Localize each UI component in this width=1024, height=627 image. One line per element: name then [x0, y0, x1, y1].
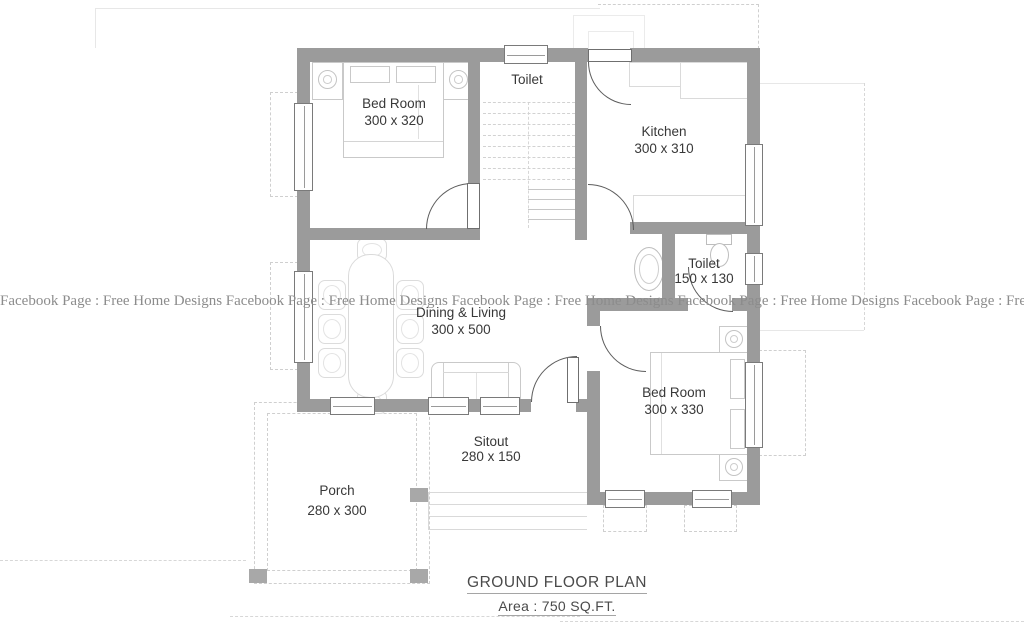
sitout-step	[428, 516, 587, 517]
stair-tread	[483, 102, 575, 103]
sitout-step	[428, 504, 587, 505]
wall	[730, 492, 760, 505]
stair-tread	[483, 135, 575, 136]
wall	[630, 222, 760, 234]
projection-line	[560, 621, 1024, 622]
room-size: 300 x 310	[599, 140, 729, 157]
step-projection	[684, 505, 737, 532]
plan-title: GROUND FLOOR PLAN	[467, 574, 647, 594]
sitout-step	[428, 529, 587, 530]
stair-tread	[483, 168, 575, 169]
door-swing	[600, 326, 646, 372]
floor-plan: Bed Room 300 x 320 Toilet Kitchen 300 x …	[0, 0, 1024, 627]
door-swing	[588, 62, 631, 105]
window-projection	[759, 350, 806, 456]
window	[504, 45, 548, 64]
wall	[643, 492, 692, 505]
stair-tread	[483, 179, 575, 180]
room-label-sitout: Sitout 280 x 150	[416, 434, 566, 464]
room-label-toilet-2: Toilet 150 x 130	[659, 256, 749, 286]
room-size: 280 x 300	[262, 501, 412, 521]
window	[605, 490, 645, 508]
wall	[297, 228, 480, 240]
watermark: Facebook Page : Free Home Designs Facebo…	[0, 293, 1024, 310]
door-swing	[588, 184, 634, 230]
kitchen-counter	[629, 62, 683, 87]
wall	[575, 48, 587, 240]
room-name: Toilet	[659, 256, 749, 271]
door-swing	[426, 183, 472, 229]
stair-tread	[483, 124, 575, 125]
step-projection	[603, 505, 647, 532]
lamp-icon	[725, 458, 743, 476]
room-label-toilet-1: Toilet	[487, 71, 567, 88]
room-name: Kitchen	[599, 123, 729, 140]
wall	[630, 48, 760, 62]
lamp-icon	[725, 330, 743, 348]
stair-tread	[483, 113, 575, 114]
stair-tread	[528, 219, 575, 220]
chair	[318, 348, 346, 378]
wall	[297, 399, 330, 412]
room-size: 150 x 130	[659, 271, 749, 286]
window	[428, 397, 469, 415]
wall	[747, 48, 760, 144]
lamp-icon	[449, 70, 468, 89]
plan-area: Area : 750 SQ.FT.	[498, 598, 615, 616]
window	[330, 397, 375, 415]
room-size: 300 x 320	[319, 112, 469, 129]
porch-pillar	[410, 488, 428, 502]
room-name: Bed Room	[599, 384, 749, 401]
bed-foot-line	[344, 141, 443, 142]
stair-tread	[528, 209, 575, 210]
stair-tread	[483, 157, 575, 158]
projection-box	[598, 4, 759, 49]
room-size: 300 x 500	[376, 321, 546, 338]
projection-line	[0, 560, 246, 561]
window	[294, 271, 313, 363]
door-leaf	[567, 357, 579, 403]
room-name: Sitout	[416, 434, 566, 449]
chair	[318, 314, 346, 344]
sitout-step	[428, 492, 587, 493]
door-leaf	[467, 183, 480, 229]
chair	[396, 348, 424, 378]
stair-tread	[528, 189, 575, 190]
room-name: Toilet	[487, 71, 567, 88]
wall	[297, 48, 310, 105]
projection-line	[95, 8, 600, 9]
wash-basin-inner	[639, 254, 659, 284]
pillow	[350, 66, 390, 83]
projection-line	[230, 616, 580, 617]
room-label-kitchen: Kitchen 300 x 310	[599, 123, 729, 157]
room-label-bedroom-1: Bed Room 300 x 320	[319, 95, 469, 129]
window	[480, 397, 520, 415]
wall	[587, 311, 600, 326]
room-name: Bed Room	[319, 95, 469, 112]
stair-tread	[483, 146, 575, 147]
window	[692, 490, 732, 508]
room-label-porch: Porch 280 x 300	[262, 481, 412, 521]
drawing-title: GROUND FLOOR PLAN Area : 750 SQ.FT.	[407, 574, 707, 616]
wall	[468, 228, 480, 240]
room-size: 300 x 330	[599, 401, 749, 418]
kitchen-counter	[680, 62, 749, 99]
projection-line	[760, 83, 864, 84]
wall	[468, 48, 480, 184]
room-label-bedroom-2: Bed Room 300 x 330	[599, 384, 749, 418]
projection-line	[760, 330, 864, 331]
projection-line	[95, 8, 96, 48]
window	[294, 103, 313, 191]
lamp-icon	[318, 70, 337, 89]
sitout-step	[428, 492, 429, 530]
door-leaf	[588, 49, 632, 62]
wall	[587, 492, 605, 505]
kitchen-counter	[633, 195, 749, 225]
porch-pillar	[249, 569, 267, 583]
room-name: Porch	[262, 481, 412, 501]
wall	[373, 399, 430, 412]
room-size: 280 x 150	[416, 449, 566, 464]
stair-tread	[528, 199, 575, 200]
window	[745, 144, 763, 226]
pillow	[396, 66, 436, 83]
